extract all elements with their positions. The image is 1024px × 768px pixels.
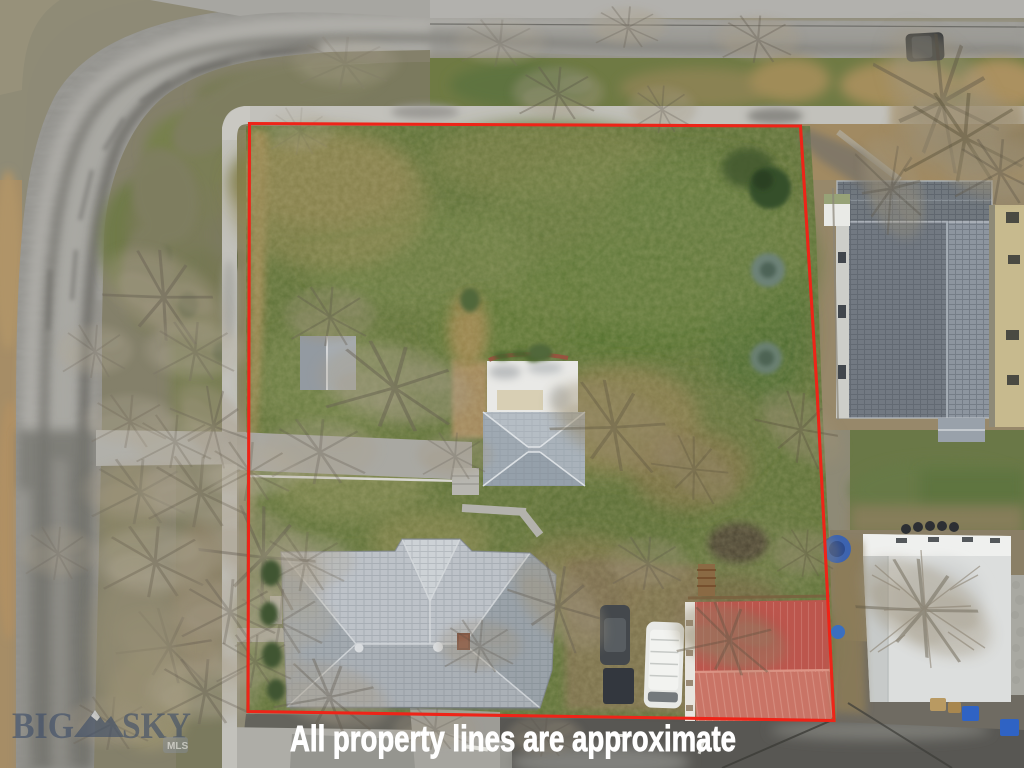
svg-text:MLS: MLS: [167, 741, 188, 752]
svg-text:BIG: BIG: [12, 706, 74, 747]
svg-text:All property lines are approxi: All property lines are approximate: [290, 718, 736, 759]
